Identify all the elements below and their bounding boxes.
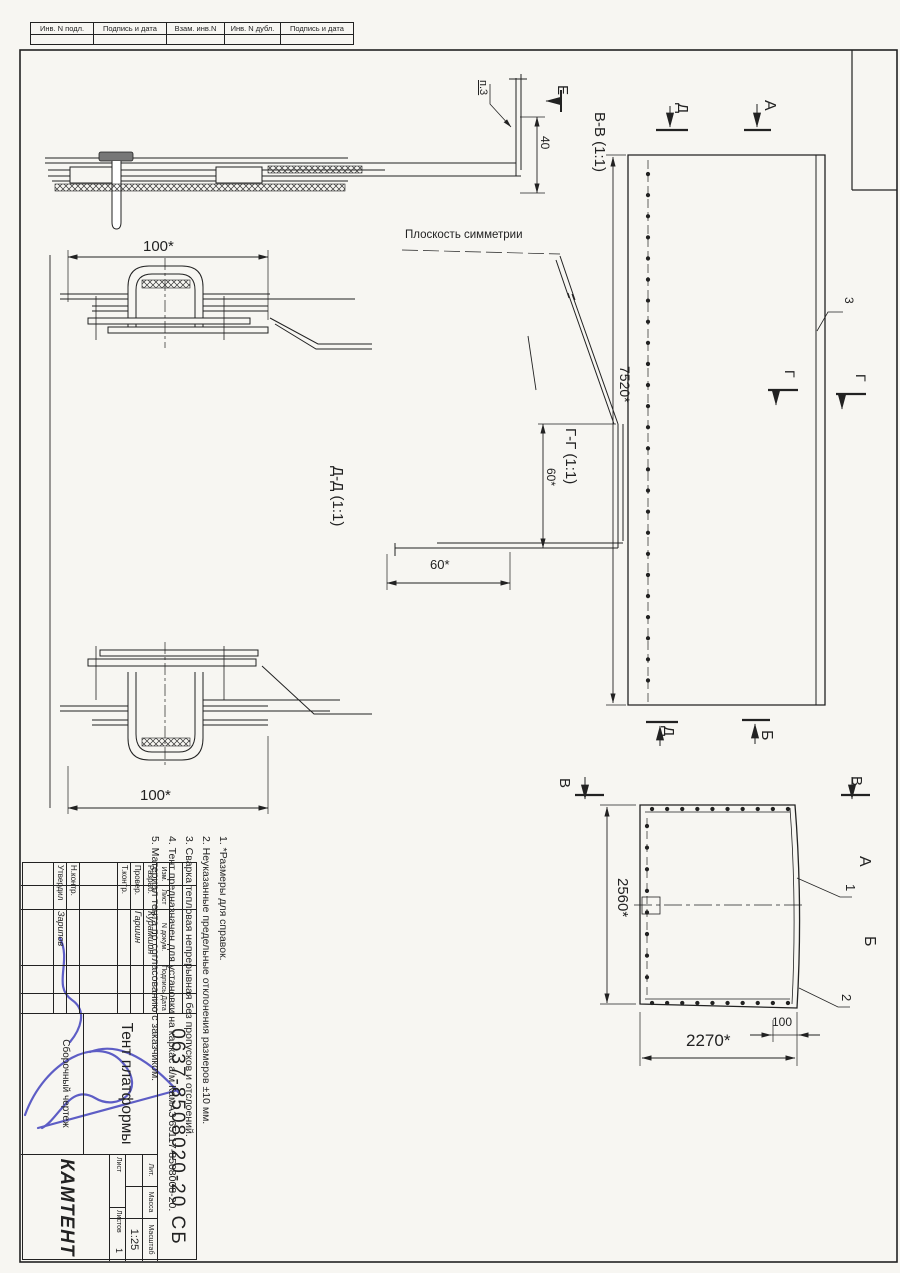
section-vv-detail (45, 74, 527, 229)
point-ref-label: п.3 (477, 80, 488, 95)
position-2-label: 2 (840, 994, 853, 1001)
tb-col-dokum: N докум. (160, 909, 167, 965)
corner-box (852, 50, 897, 190)
tb-role-prover: Провер. (133, 865, 141, 895)
dim-2270: 2270* (686, 1032, 730, 1049)
tb-name-razrab: Курамшин (146, 911, 155, 954)
tb-sheet-label: Лист (115, 1157, 122, 1172)
dim-7520: 7520* (618, 366, 632, 403)
section-letter-d-bottom: Д (661, 726, 676, 736)
margin-strip: Инв. N подл. Подпись и дата Взам. инв.N … (30, 22, 354, 45)
symmetry-line (402, 250, 560, 254)
lower-seam-detail (60, 646, 372, 760)
tb-role-nkontr: Н.контр. (69, 865, 77, 896)
section-letter-g2: Г (854, 374, 868, 382)
section-vv-label: В-В (1:1) (592, 112, 607, 172)
section-letter-v-left: В (557, 778, 572, 788)
tb-role-tkontr: Т.контр. (120, 865, 128, 894)
title-block: Изм. Лист N докум. Подпись Дата Разраб. … (22, 862, 197, 1260)
view-letter-a-side: А (856, 856, 872, 867)
tb-col-data: Дата (160, 993, 167, 1013)
section-gg-detail (395, 256, 623, 556)
tb-col-podpis: Подпись (160, 965, 167, 993)
view-letter-a-top: А (761, 100, 777, 111)
strip-label: Инв. N подл. (31, 23, 93, 35)
view-letter-e: Е (555, 85, 570, 95)
upper-seam-detail (60, 266, 372, 349)
dim-60-vertical: 60* (545, 468, 557, 486)
tb-col-list: Лист (160, 885, 167, 909)
symmetry-plane-label: Плоскость симметрии (405, 230, 523, 242)
tb-name-prover: Гаршин (133, 911, 142, 943)
tb-lit-label: Лит. (147, 1154, 154, 1186)
view-arrows (546, 90, 870, 799)
strip-label: Взам. инв.N (167, 23, 224, 35)
note-1: 1. *Размеры для справок. (218, 836, 229, 961)
tb-scale-value: 1:25 (128, 1218, 139, 1261)
strip-cell: Инв. N подл. (30, 22, 94, 45)
tb-mass-label: Масса (147, 1186, 154, 1218)
section-letter-v-right: В (849, 776, 864, 786)
strip-cell: Взам. инв.N (167, 22, 225, 45)
strip-cell: Подпись и дата (94, 22, 167, 45)
tb-sheets-count: 1 (114, 1248, 123, 1253)
section-letter-g1: Г (783, 370, 797, 378)
strip-cell: Инв. N дубл. (225, 22, 281, 45)
dim-40: 40 (539, 136, 551, 149)
dim-100-bottom: 100* (140, 788, 171, 803)
fastener-dots (647, 174, 788, 1003)
tb-company: КАМТЕНТ (57, 1154, 76, 1261)
dim-100-side: 100 (772, 1016, 792, 1028)
leader-lines (490, 84, 852, 1007)
section-letter-d-top: Д (675, 103, 690, 113)
section-gg-label: Г-Г (1:1) (563, 428, 578, 484)
plan-view (628, 155, 825, 705)
tb-name-utv: Зарипов (56, 911, 65, 946)
tb-role-razrab: Разраб. (146, 865, 154, 894)
strip-label: Инв. N дубл. (225, 23, 280, 35)
strip-cell: Подпись и дата (281, 22, 354, 45)
strip-label: Подпись и дата (94, 23, 166, 35)
section-dd-label: Д-Д (1:1) (330, 466, 345, 526)
view-letter-b-bottom: Б (758, 730, 774, 741)
view-letter-b-side: Б (861, 936, 877, 947)
note-2: 2. Неуказанные предельные отклонения раз… (201, 836, 212, 1124)
side-view (640, 805, 800, 1008)
tb-scale-label: Масштаб (147, 1218, 154, 1261)
tb-doc-number: 0637-8508020-20 СБ (168, 1013, 187, 1261)
tb-part-name: Тент платформы (119, 1013, 135, 1154)
dim-2560: 2560* (615, 878, 630, 917)
dim-100-top: 100* (143, 239, 174, 254)
drawing-sheet: { "colors": {"ink": "#222222", "paper": … (0, 0, 900, 1273)
strip-label: Подпись и дата (281, 23, 353, 35)
position-1-label: 1 (844, 884, 857, 891)
tb-col-izm: Изм. (160, 863, 167, 885)
tb-sheets-label: Листов (115, 1210, 122, 1233)
position-3-label: 3 (843, 297, 855, 304)
tb-doc-type: Сборочный чертеж (60, 1013, 70, 1154)
tb-role-utv: Утвердил (56, 865, 64, 900)
dim-60-horizontal: 60* (430, 558, 450, 571)
